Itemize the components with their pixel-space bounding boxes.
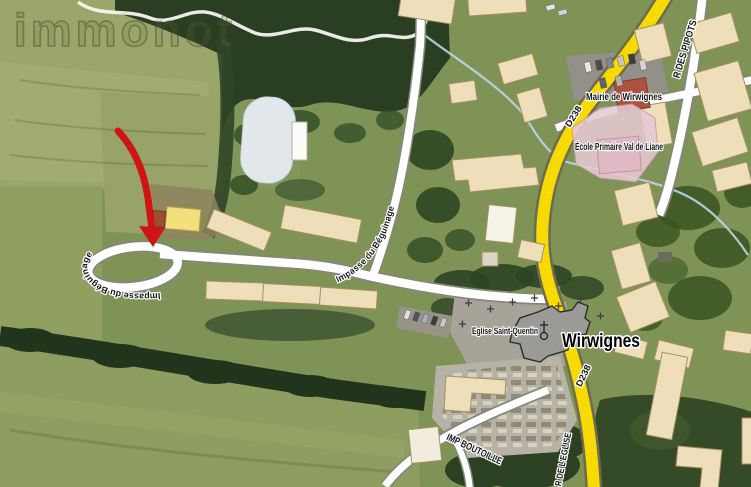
aerial-map-view: immonot Mairie de Wirwignes École Primai… (0, 0, 751, 487)
building-yellow-house (165, 207, 201, 232)
pond (239, 95, 297, 184)
poi-label-school: École Primaire Val de Liane (575, 140, 663, 153)
poi-label-mairie: Mairie de Wirwignes (586, 92, 662, 103)
building-white-barn (292, 122, 307, 160)
poi-label-church: Eglise Saint-Quentin (472, 326, 538, 337)
town-label: Wirwignes (562, 331, 640, 352)
watermark: immonot (14, 4, 236, 56)
map-canvas: immonot Mairie de Wirwignes École Primai… (0, 0, 751, 487)
building-terrace-row (206, 281, 265, 301)
